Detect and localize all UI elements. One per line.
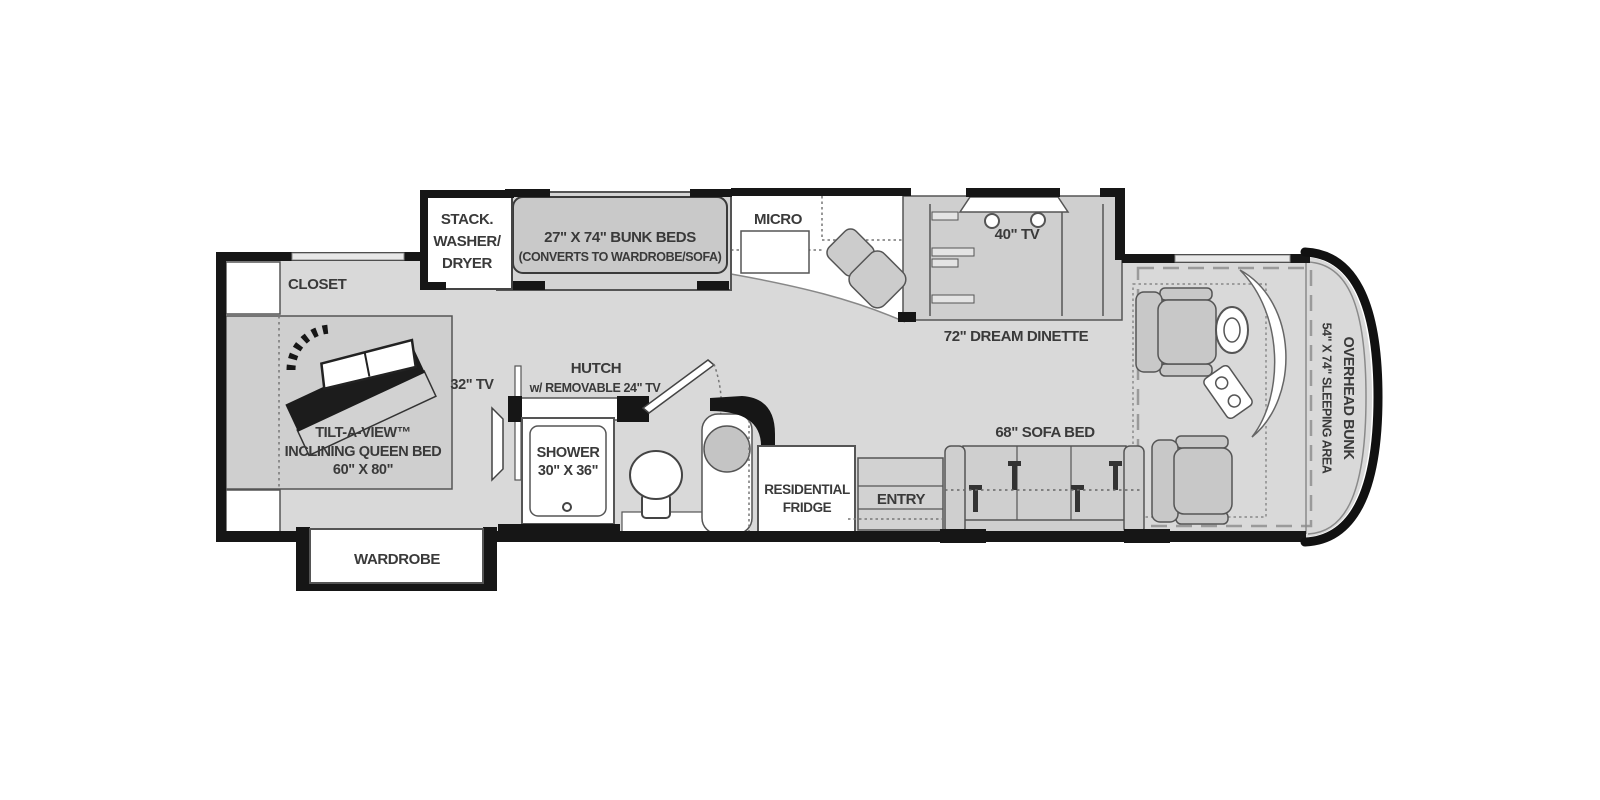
microwave-box: [741, 231, 809, 273]
floorplan-canvas: STACK. WASHER/ DRYER 27" X 74" BUNK BEDS…: [0, 0, 1600, 800]
dinette-slide-mark: [898, 312, 916, 322]
washer-dryer-label-2: WASHER/: [433, 233, 501, 250]
fridge-label-1: RESIDENTIAL: [764, 482, 850, 497]
rear-wall: [216, 252, 226, 542]
entry-label: ENTRY: [877, 491, 926, 508]
bedroom-partition-wall: [515, 366, 521, 480]
cab-window: [1175, 255, 1290, 262]
floorplan-page: STACK. WASHER/ DRYER 27" X 74" BUNK BEDS…: [0, 0, 1600, 800]
micro-label: MICRO: [754, 211, 803, 228]
bunk-beds-label-1: 27" X 74" BUNK BEDS: [544, 229, 696, 246]
driver-seat: [1136, 288, 1216, 376]
top-wall-galley: [731, 188, 911, 196]
closet-box: [226, 262, 280, 314]
passenger-seat: [1152, 436, 1232, 524]
hutch-counter: [521, 398, 618, 420]
bath-wall-bulge: [498, 524, 620, 542]
dinette-corner-wall-b: [1115, 188, 1125, 260]
washer-dryer-label-1: STACK.: [441, 211, 494, 228]
hutch-wall-left: [508, 396, 522, 422]
hutch-label-1: HUTCH: [571, 360, 622, 377]
sofa-bed: [945, 446, 1144, 537]
closet-label: CLOSET: [288, 276, 347, 293]
sofa-bed-label: 68" SOFA BED: [995, 424, 1095, 441]
dinette-slide: [903, 196, 1122, 320]
overhead-bunk-label-2: 54" X 74" SLEEPING AREA: [1320, 323, 1334, 474]
shower-label-2: 30" X 36": [538, 463, 598, 479]
fridge-label-2: FRIDGE: [783, 500, 832, 515]
tv-32-icon: [492, 408, 503, 480]
rear-window: [292, 253, 404, 260]
tv-40-label: 40" TV: [995, 226, 1040, 243]
vanity-sink: [702, 414, 752, 534]
nightstand-box: [226, 490, 280, 537]
washer-dryer-label-3: DRYER: [442, 255, 493, 272]
steering-wheel-icon: [1216, 307, 1248, 353]
bunk-beds-label-2: (CONVERTS TO WARDROBE/SOFA): [519, 250, 722, 264]
dinette-label: 72" DREAM DINETTE: [944, 328, 1089, 345]
shower-label-1: SHOWER: [537, 445, 601, 461]
sofa-slide-mark-right: [1124, 529, 1170, 543]
tv-32-label: 32" TV: [450, 377, 494, 393]
queen-bed-label-3: 60" X 80": [333, 462, 393, 478]
wardrobe-label: WARDROBE: [354, 551, 440, 568]
bottom-wall-rear: [216, 531, 310, 542]
top-wall-dinette: [966, 188, 1060, 197]
queen-bed-label-2: INCLINING QUEEN BED: [285, 444, 442, 460]
hutch-label-2: w/ REMOVABLE 24" TV: [529, 381, 662, 395]
queen-bed-label-1: TILT-A-VIEW™: [315, 425, 411, 441]
overhead-bunk-label-1: OVERHEAD BUNK: [1340, 337, 1356, 461]
sofa-slide-mark-left: [940, 529, 986, 543]
